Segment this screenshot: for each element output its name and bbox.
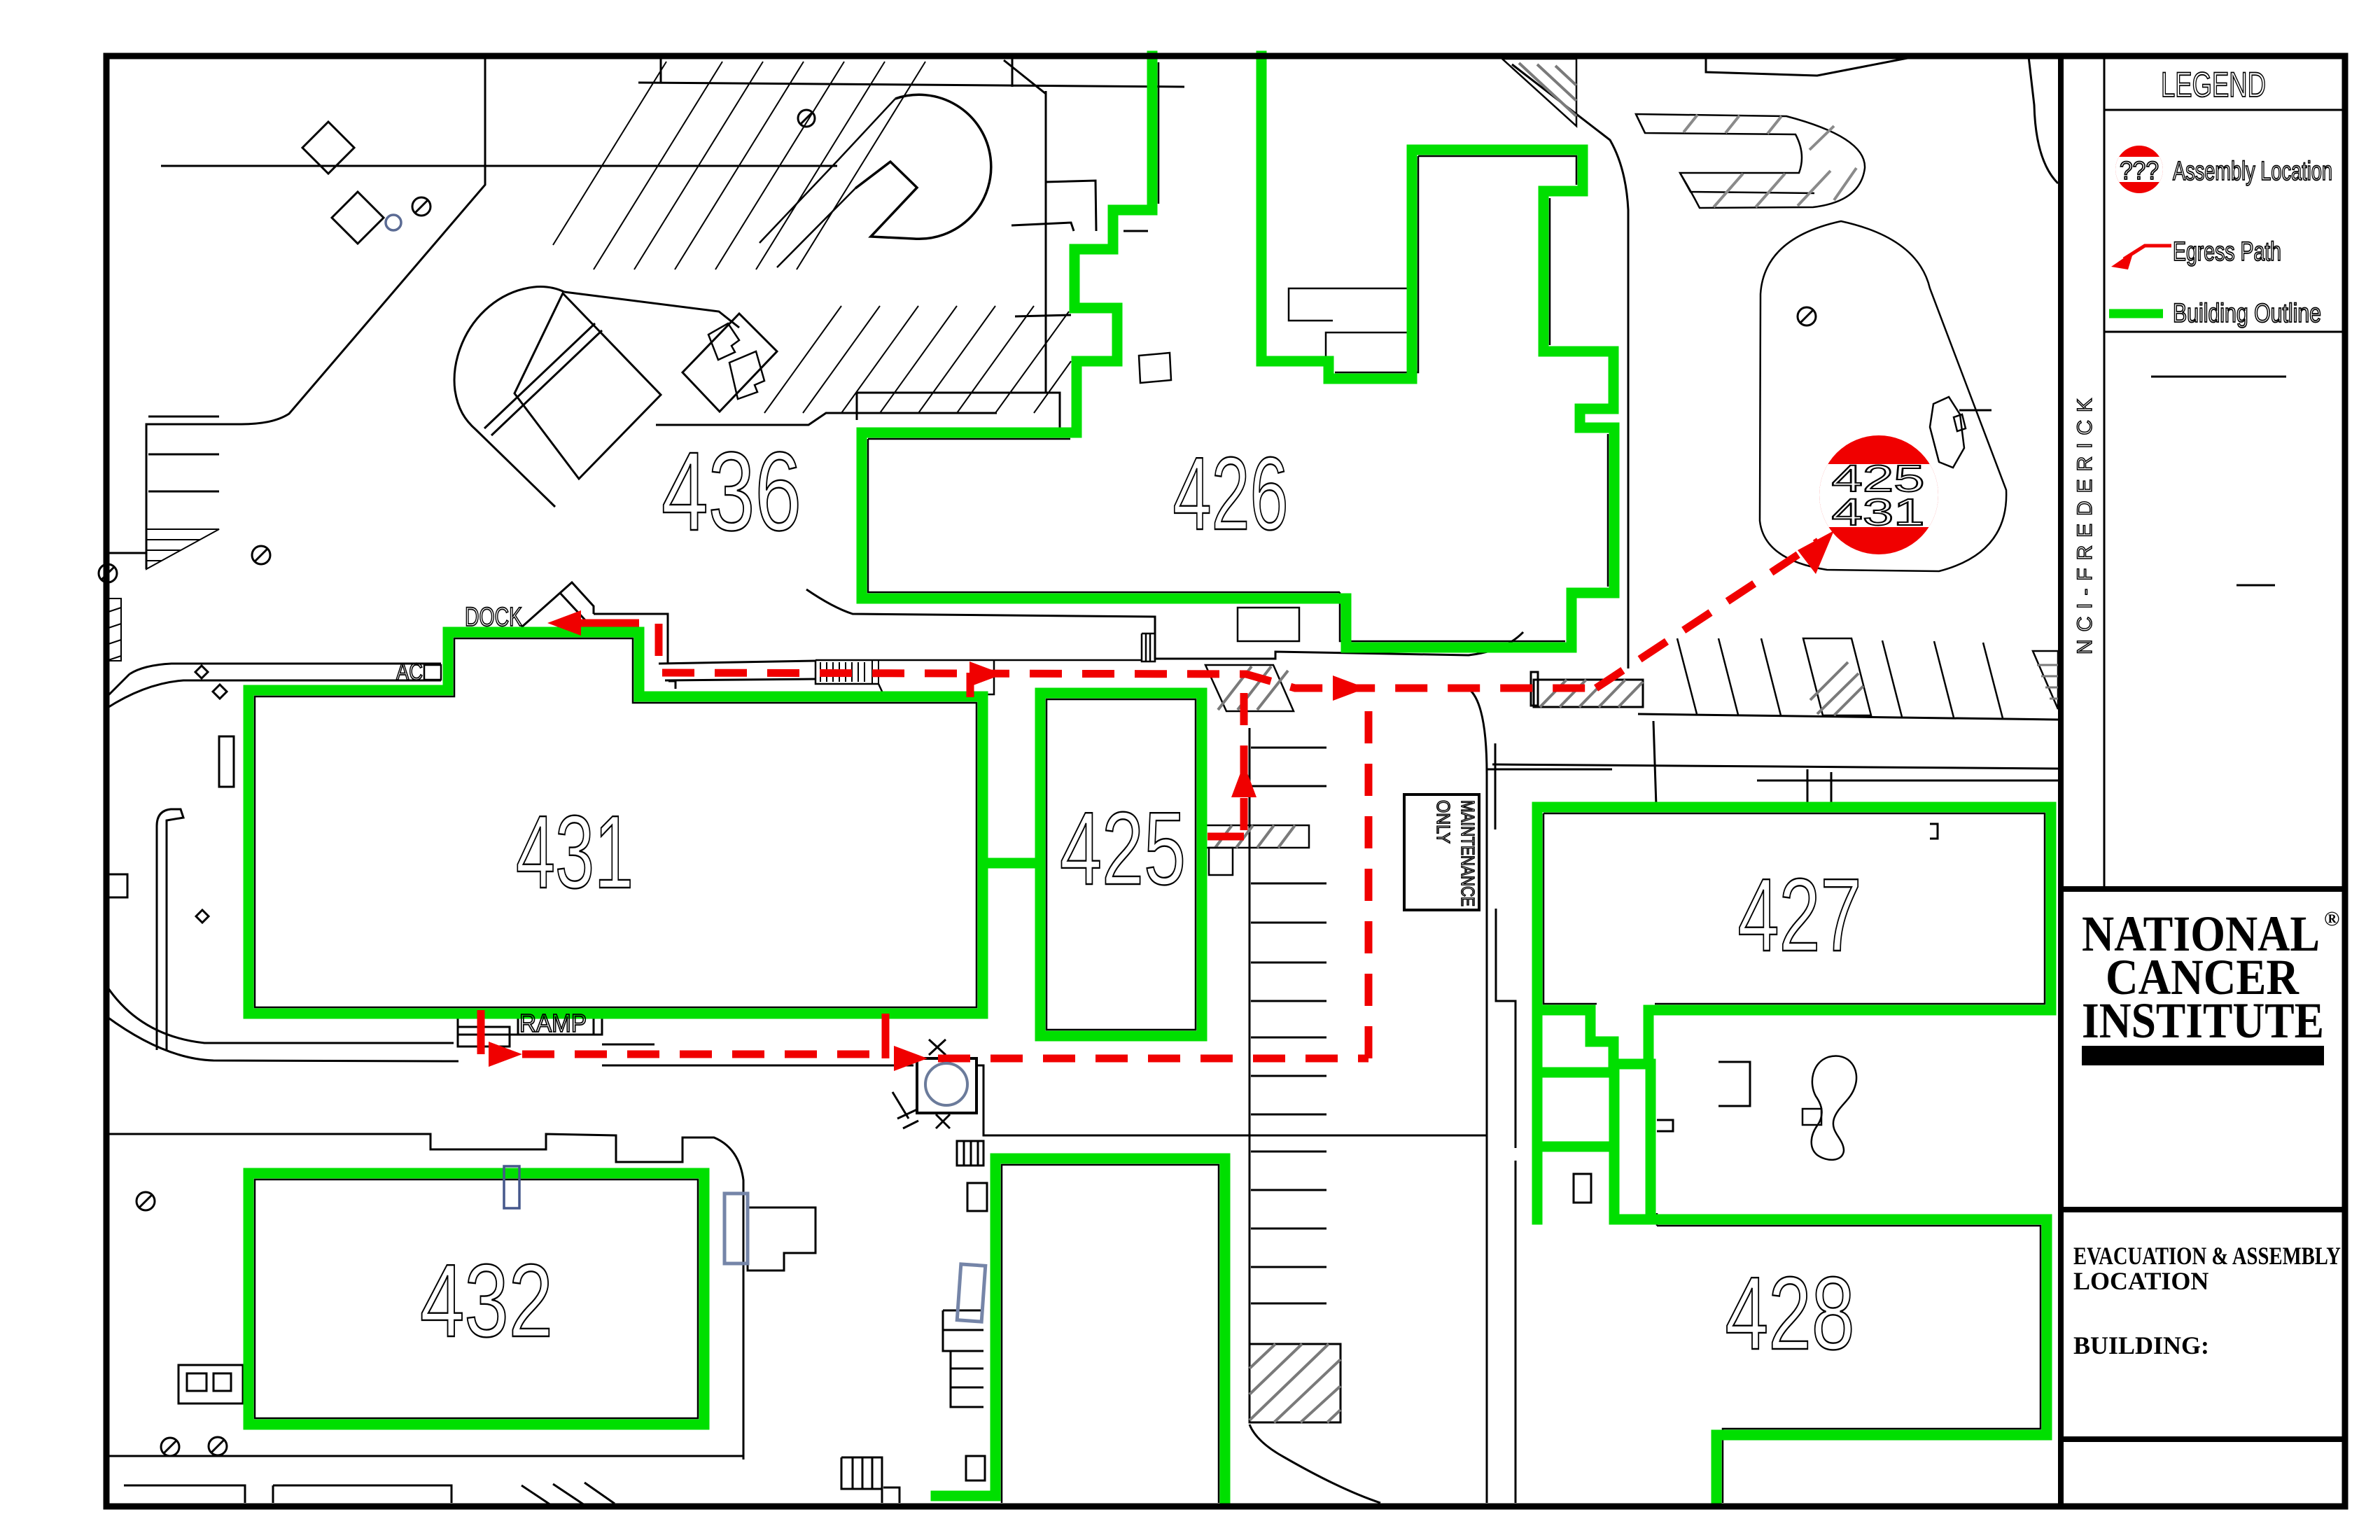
svg-text:INSTITUTE: INSTITUTE: [2082, 993, 2324, 1049]
svg-text:Building Outline: Building Outline: [2173, 299, 2321, 328]
svg-text:436: 436: [661, 428, 801, 554]
svg-text:ONLY: ONLY: [1433, 800, 1454, 843]
svg-text:AC: AC: [396, 659, 423, 685]
svg-text:Egress Path: Egress Path: [2173, 237, 2281, 267]
svg-text:432: 432: [420, 1243, 553, 1359]
svg-text:425: 425: [1060, 791, 1186, 906]
svg-text:428: 428: [1725, 1256, 1855, 1371]
svg-text:LEGEND: LEGEND: [2161, 65, 2266, 104]
svg-text:431: 431: [516, 794, 633, 910]
svg-text:BUILDING:: BUILDING:: [2073, 1331, 2209, 1359]
svg-text:MAINTENANCE: MAINTENANCE: [1457, 800, 1478, 906]
svg-text:RAMP: RAMP: [519, 1009, 587, 1037]
svg-text:426: 426: [1173, 436, 1289, 552]
svg-text:NCI-FREDERICK: NCI-FREDERICK: [2073, 392, 2096, 654]
svg-text:LOCATION: LOCATION: [2073, 1267, 2208, 1295]
svg-text:431: 431: [1832, 491, 1925, 533]
svg-text:DOCK: DOCK: [465, 603, 522, 632]
svg-text:???: ???: [2120, 156, 2159, 185]
svg-text:®: ®: [2324, 907, 2339, 930]
svg-text:Assembly Location: Assembly Location: [2173, 157, 2332, 186]
svg-text:EVACUATION & ASSEMBLY: EVACUATION & ASSEMBLY: [2073, 1242, 2341, 1270]
svg-text:427: 427: [1738, 857, 1862, 973]
